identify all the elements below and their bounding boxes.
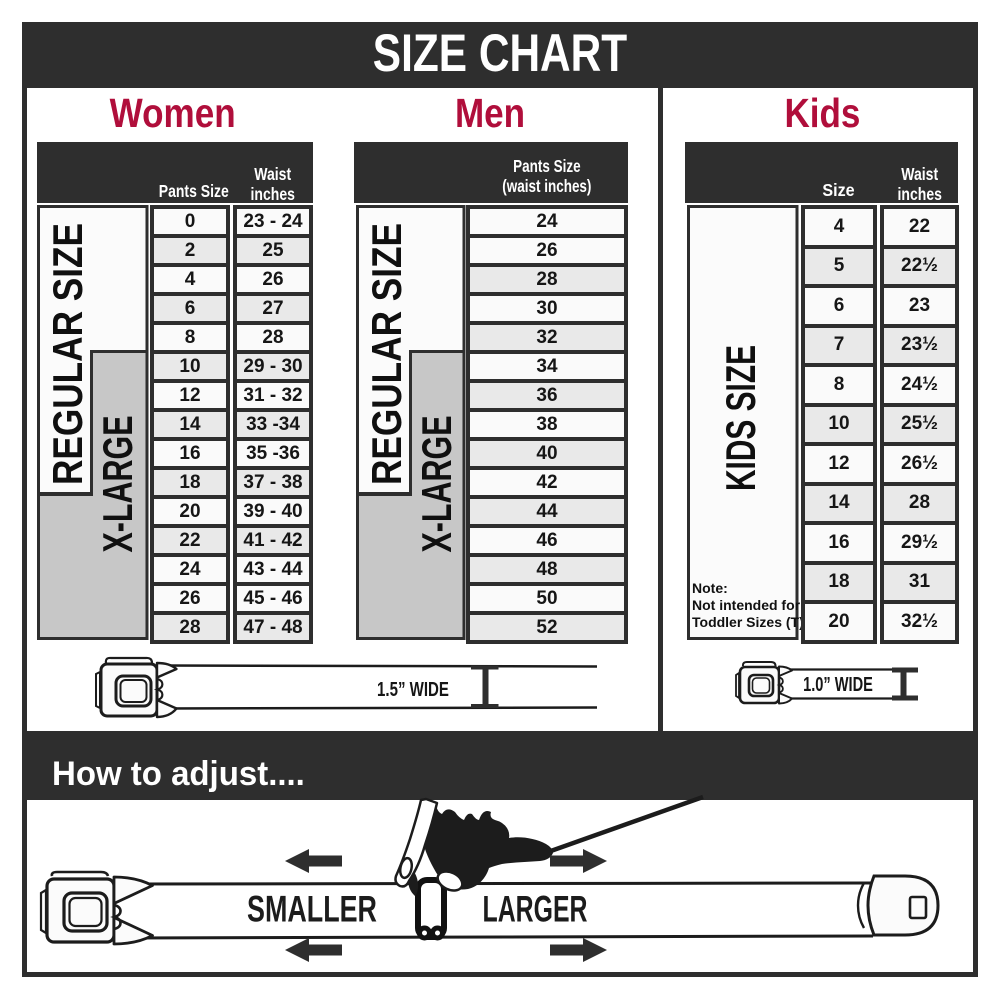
svg-text:SMALLER: SMALLER: [247, 888, 377, 929]
svg-text:LARGER: LARGER: [483, 887, 588, 929]
